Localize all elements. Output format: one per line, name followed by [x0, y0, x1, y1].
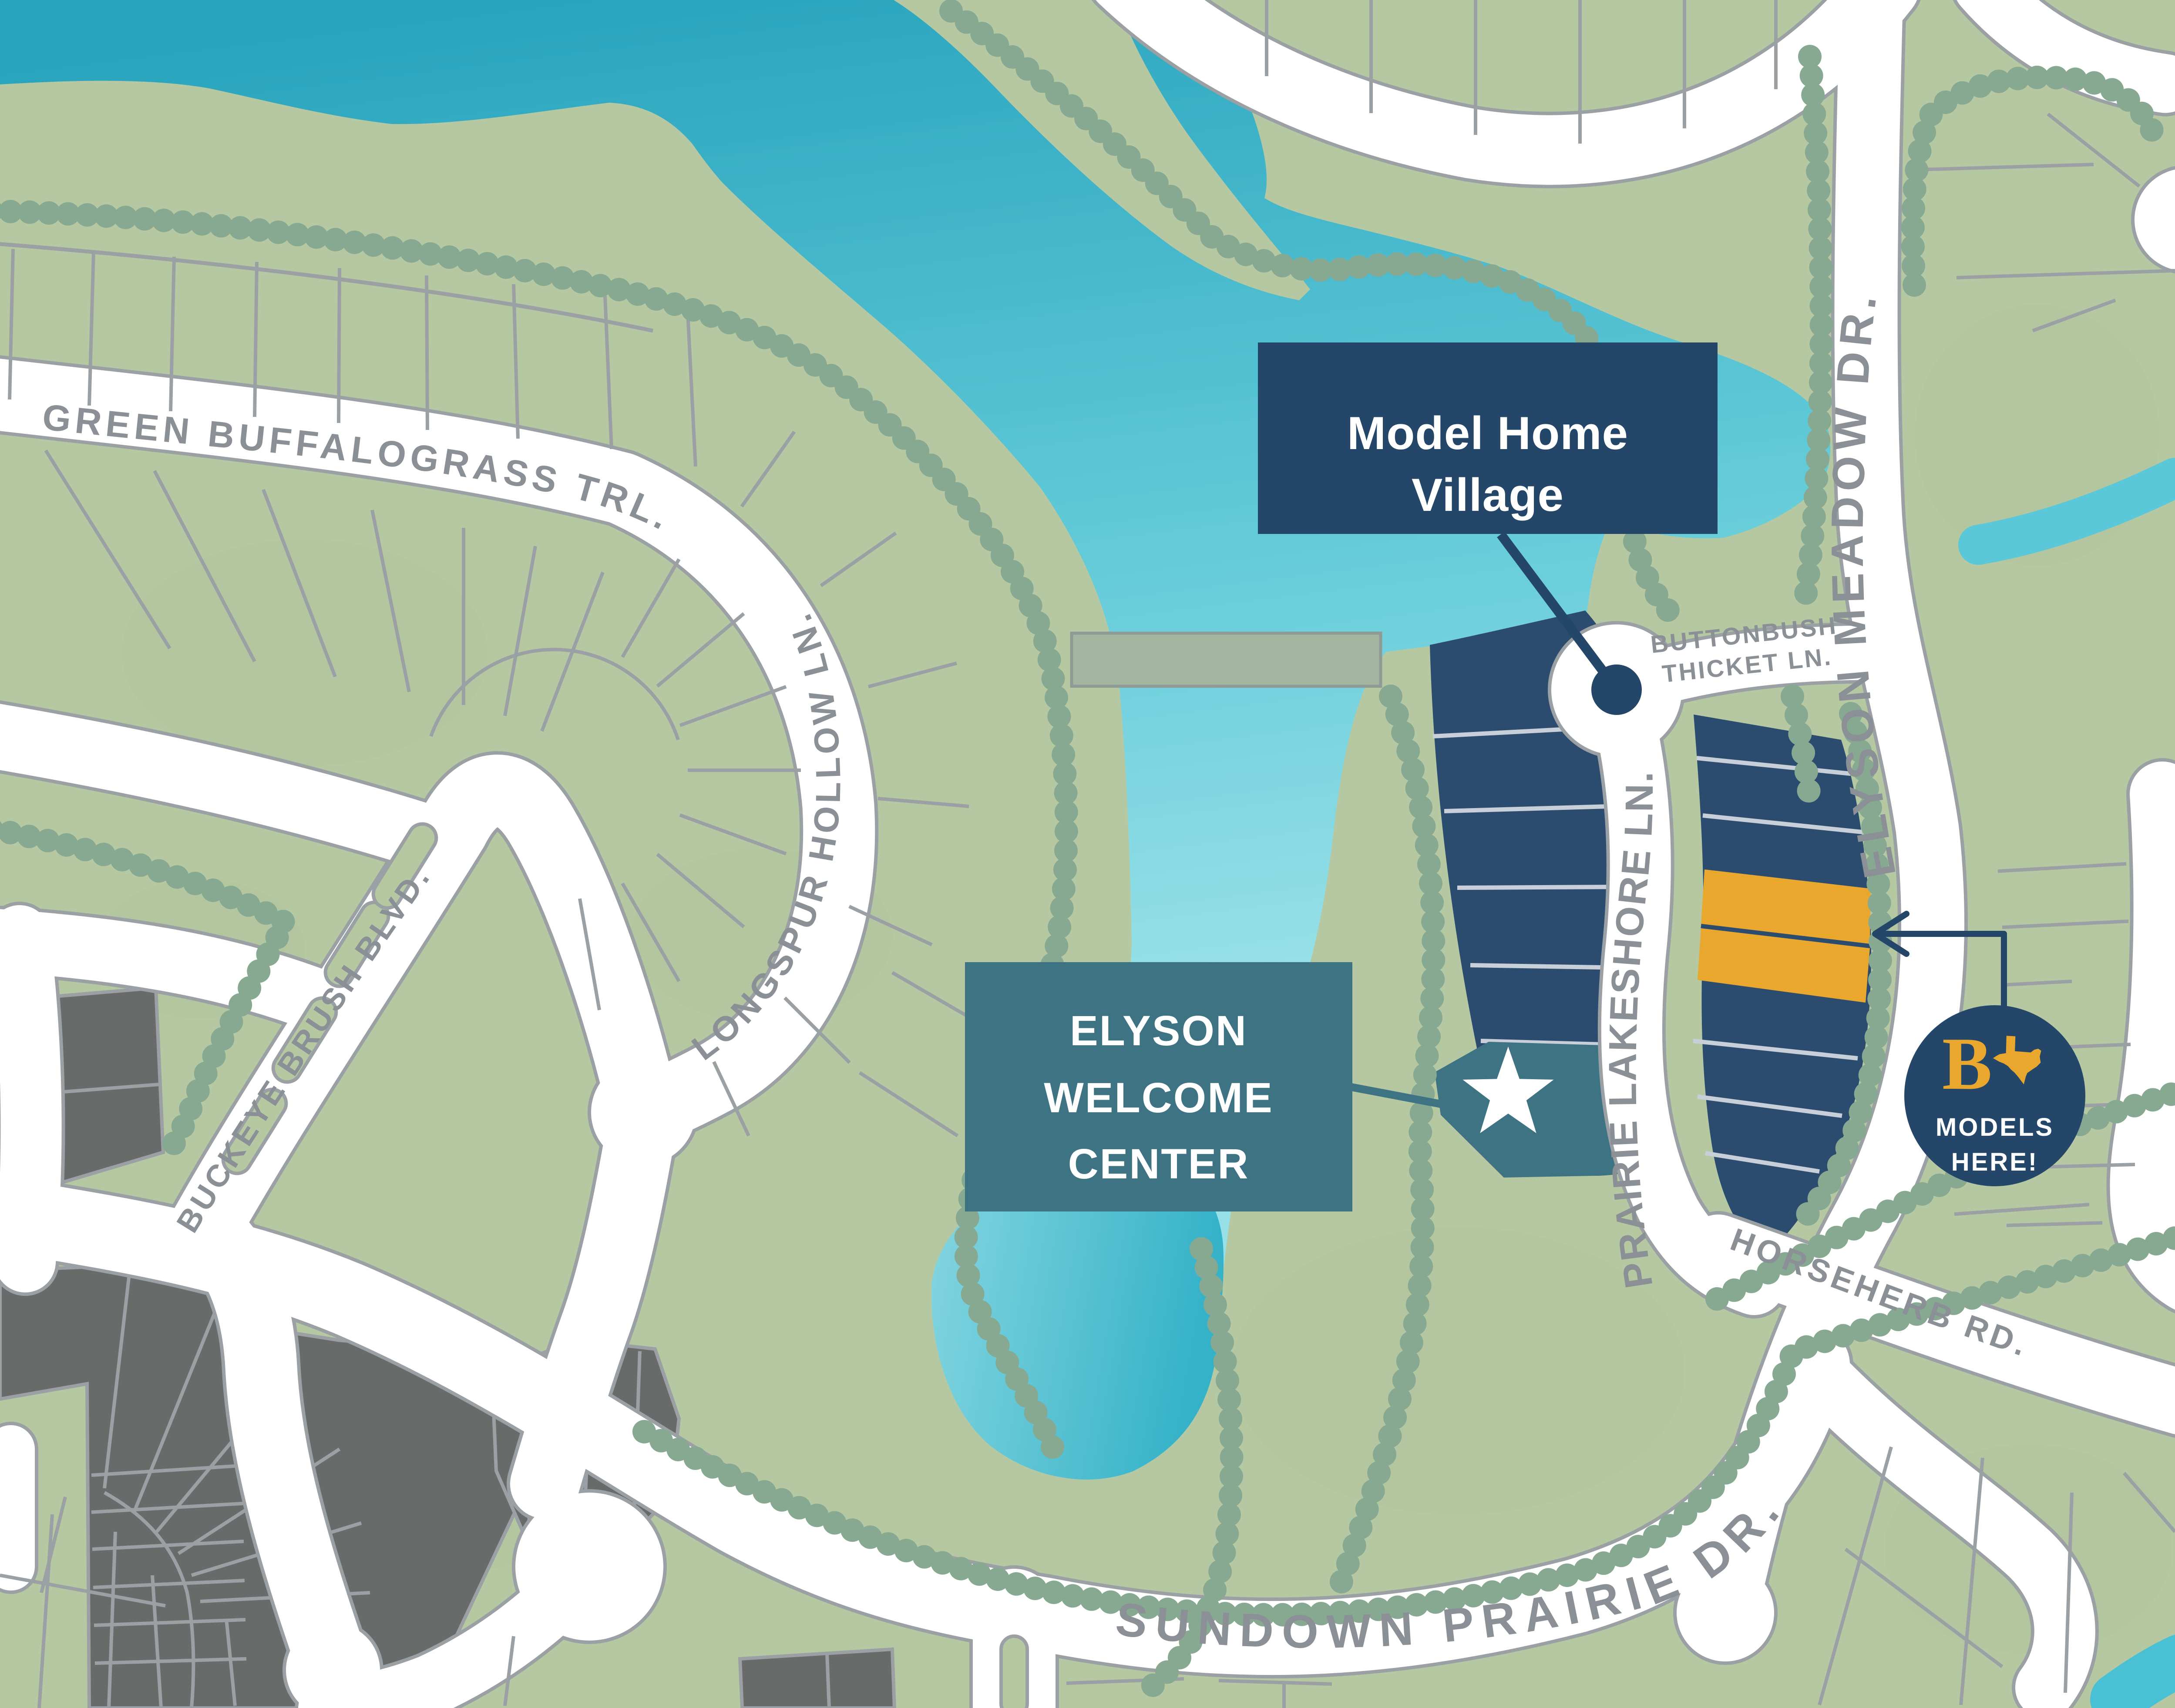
svg-text:MODELS: MODELS: [1936, 1113, 2054, 1141]
svg-text:HERE!: HERE!: [1951, 1148, 2038, 1176]
svg-text:B: B: [1942, 1023, 1992, 1105]
svg-text:WELCOME: WELCOME: [1044, 1074, 1274, 1121]
svg-text:CENTER: CENTER: [1068, 1140, 1250, 1188]
svg-text:Village: Village: [1412, 469, 1564, 521]
svg-text:Model Home: Model Home: [1347, 407, 1628, 459]
svg-text:ELYSON: ELYSON: [1070, 1007, 1247, 1054]
